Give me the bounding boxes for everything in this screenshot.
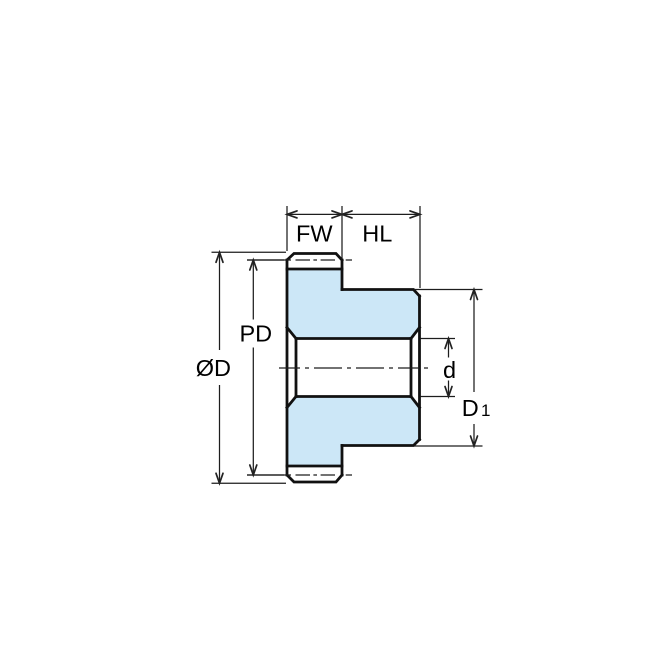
svg-text:d: d (443, 357, 456, 383)
svg-text:HL: HL (362, 221, 392, 247)
svg-text:FW: FW (296, 221, 333, 247)
svg-text:D: D (462, 395, 479, 421)
svg-text:PD: PD (239, 321, 272, 347)
svg-text:1: 1 (481, 401, 490, 420)
svg-text:ØD: ØD (196, 355, 231, 381)
